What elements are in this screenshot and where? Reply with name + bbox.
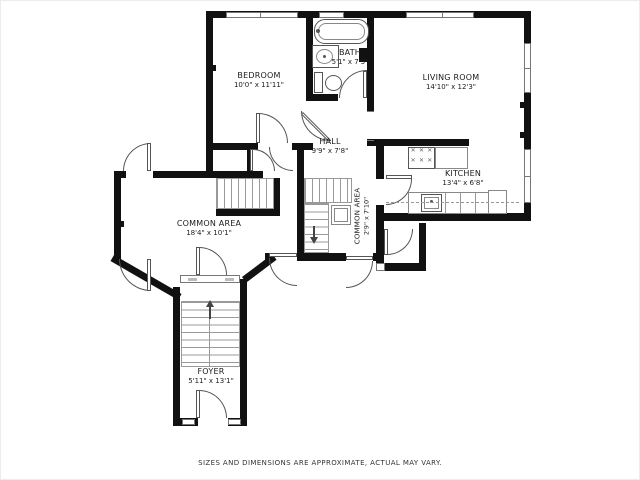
wall-segment <box>206 11 213 178</box>
window <box>182 419 195 425</box>
room-label-kitchen: KITCHEN 13'4" x 6'8" <box>442 169 483 187</box>
window-mullion <box>442 13 443 17</box>
staircase-common-area <box>216 178 274 209</box>
disclaimer-text: SIZES AND DIMENSIONS ARE APPROXIMATE, AC… <box>1 459 639 467</box>
stair-direction-arrow-icon <box>310 237 318 244</box>
window <box>226 12 298 18</box>
room-name: LIVING ROOM <box>423 73 480 82</box>
room-dimensions: 18'4" x 10'1" <box>177 229 241 237</box>
wall-nub <box>121 221 124 227</box>
counter-dashed-line <box>386 202 519 203</box>
window-mullion <box>260 13 261 17</box>
door-leaf <box>147 143 151 171</box>
wall-segment <box>114 171 121 261</box>
window <box>319 12 344 18</box>
door-arc <box>199 247 227 275</box>
kitchen-sink-inner <box>424 197 439 209</box>
door-leaf <box>250 149 253 171</box>
door-opening <box>198 418 228 426</box>
cabinet-divider <box>445 193 446 213</box>
drain-icon <box>323 55 326 58</box>
door-arc <box>269 258 297 286</box>
wall-segment <box>173 287 180 426</box>
room-name: HALL <box>312 137 349 146</box>
room-dimensions: 5'11" x 13'1" <box>188 377 234 385</box>
stair-direction-arrow-icon <box>206 300 214 307</box>
toilet-bowl-fixture <box>325 75 342 91</box>
room-dimensions: 5'1" x 7'3" <box>332 58 369 66</box>
room-dimensions: 13'4" x 6'8" <box>442 179 483 187</box>
floor-plan: ✕✕✕✕✕✕ BEDROOM 10'0" x 11'11" BATH 5'1" … <box>0 0 640 480</box>
toilet-tank-fixture <box>314 72 323 93</box>
room-label-living-room: LIVING ROOM 14'10" x 12'3" <box>423 73 480 91</box>
window-mullion <box>525 68 530 69</box>
wall-segment <box>297 150 304 261</box>
room-name: COMMON AREA <box>177 219 241 228</box>
wall-segment <box>306 94 338 101</box>
door-leaf <box>384 229 388 255</box>
wall-nub <box>520 102 524 108</box>
cabinet-divider <box>460 193 461 213</box>
door-leaf <box>147 259 151 291</box>
stove-burners-icon: ✕✕✕✕✕✕ <box>409 148 434 168</box>
door-leaf <box>256 113 260 143</box>
faucet-icon <box>316 29 320 33</box>
opening-threshold <box>367 111 374 112</box>
wall-segment <box>376 146 384 179</box>
room-name: KITCHEN <box>442 169 483 178</box>
stair-landing-inner <box>334 208 348 222</box>
door-leaf <box>196 247 200 275</box>
wall-segment <box>240 279 247 426</box>
wall-nub <box>520 132 524 138</box>
door-arc <box>387 229 413 255</box>
cabinet-divider <box>475 193 476 213</box>
room-name: COMMON AREA <box>354 188 362 245</box>
stair-direction-arrow-icon <box>209 306 211 319</box>
door-arc <box>258 113 288 143</box>
wall-nub <box>213 65 216 71</box>
wall-segment <box>297 253 346 261</box>
doorway-threshold <box>180 275 240 283</box>
wall-segment <box>213 171 263 178</box>
burner-icon: ✕ <box>426 158 434 168</box>
room-label-common-area-stair: COMMON AREA 2'9" x 7'10" <box>354 188 371 245</box>
window <box>406 12 474 18</box>
threshold-tick <box>225 278 234 281</box>
burner-icon: ✕ <box>417 158 425 168</box>
wall-segment <box>419 223 426 271</box>
staircase-winder-lower <box>304 203 329 253</box>
door-leaf <box>363 71 367 98</box>
door-arc <box>346 261 373 288</box>
staircase-winder-upper <box>304 178 352 203</box>
window <box>524 43 531 93</box>
window <box>524 149 531 203</box>
wall-segment <box>292 143 313 150</box>
room-dimensions: 9'9" x 7'8" <box>312 147 349 155</box>
wall-segment <box>384 213 531 221</box>
wall-segment <box>373 253 384 261</box>
room-label-bedroom: BEDROOM 10'0" x 11'11" <box>234 71 284 89</box>
room-label-bath: BATH 5'1" x 7'3" <box>332 48 369 66</box>
room-dimensions: 2'9" x 7'10" <box>363 188 371 245</box>
wall-segment <box>367 139 469 146</box>
doorway-threshold <box>376 263 385 271</box>
door-arc <box>199 390 227 418</box>
window-mullion <box>525 176 530 177</box>
door-leaf <box>269 253 297 257</box>
wall-segment <box>273 178 280 216</box>
room-name: BATH <box>332 48 369 57</box>
burner-icon: ✕ <box>409 158 417 168</box>
room-dimensions: 10'0" x 11'11" <box>234 81 284 89</box>
door-leaf <box>196 390 200 418</box>
door-leaf <box>386 175 412 179</box>
threshold-tick <box>188 278 197 281</box>
room-label-foyer: FOYER 5'11" x 13'1" <box>188 367 234 385</box>
bathtub-fixture-inner <box>318 23 365 40</box>
room-label-hall: HALL 9'9" x 7'8" <box>312 137 349 155</box>
door-leaf <box>346 256 373 260</box>
wall-segment <box>216 209 279 216</box>
room-dimensions: 14'10" x 12'3" <box>423 83 480 91</box>
room-label-common-area: COMMON AREA 18'4" x 10'1" <box>177 219 241 237</box>
opening-threshold <box>367 140 374 141</box>
wall-segment <box>153 171 215 178</box>
kitchen-counter <box>435 147 468 169</box>
window <box>228 419 241 425</box>
room-name: FOYER <box>188 367 234 376</box>
room-name: BEDROOM <box>234 71 284 80</box>
